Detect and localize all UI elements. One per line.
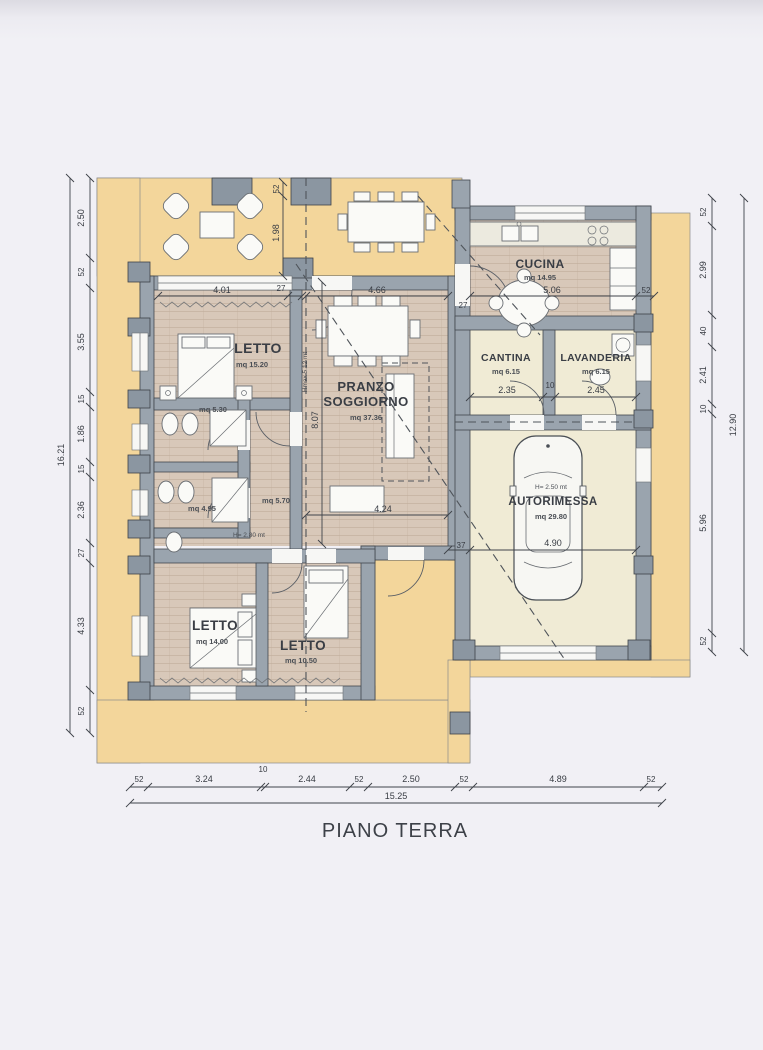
dim-left-9: 52 <box>77 706 86 715</box>
label-letto3: LETTO <box>280 638 326 653</box>
note-disimpegno-height: H= 2.80 mt <box>233 532 265 539</box>
dim-bottom-4: 52 <box>355 775 364 784</box>
area-bagno1: mq 5.30 <box>199 405 227 414</box>
dim-wall-c: 52 <box>642 286 651 295</box>
dim-left-8: 4.33 <box>76 617 86 635</box>
dim-left-6: 2.36 <box>76 501 86 519</box>
area-letto3: mq 10.50 <box>285 656 317 665</box>
dim-garage-width: 4.90 <box>544 538 562 548</box>
dim-wall-a: 27 <box>277 284 286 293</box>
dim-left-7: 27 <box>77 548 86 557</box>
dim-right-1: 2.99 <box>698 261 708 279</box>
dim-bottom-3: 2.44 <box>298 774 316 784</box>
label-letto2: LETTO <box>192 618 238 633</box>
dim-bottom-0: 52 <box>135 775 144 784</box>
area-letto2: mq 14.00 <box>196 637 228 646</box>
bed-letto3 <box>304 566 348 638</box>
dim-right-6: 52 <box>699 636 708 645</box>
dim-cucina-width: 5.06 <box>543 285 561 295</box>
area-disimpegno: mq 5.70 <box>262 496 290 505</box>
scanned-floor-plan-sheet: 2.50 52 3.55 15 1.86 15 2.36 27 4.33 52 … <box>0 0 763 1050</box>
dim-left-5: 15 <box>77 464 86 473</box>
note-hmax: Hmax 5.12 mt <box>302 352 309 393</box>
dim-lavanderia-width: 2.45 <box>587 385 605 395</box>
note-garage-height: H= 2.50 mt <box>535 484 567 491</box>
dim-right-0: 52 <box>699 207 708 216</box>
dim-right-total: 12.90 <box>728 414 738 437</box>
dim-bottom-2: 10 <box>259 765 268 774</box>
dim-patio-wall: 52 <box>272 184 281 193</box>
dim-right-3: 2.41 <box>698 366 708 384</box>
dim-bottom-5: 2.50 <box>402 774 420 784</box>
dim-bottom-6: 52 <box>460 775 469 784</box>
label-letto1: LETTO <box>234 340 282 356</box>
dim-bottom-1: 3.24 <box>195 774 213 784</box>
patio-pillar <box>291 178 331 205</box>
dim-wall-b: 27 <box>459 301 468 310</box>
dim-bottom-total: 15.25 <box>385 791 408 801</box>
area-soggiorno: mq 37.36 <box>350 413 382 422</box>
dim-soggiorno-lower-width: 4.24 <box>374 504 392 514</box>
dim-left-4: 1.86 <box>76 425 86 443</box>
dim-garage-wall: 37 <box>457 541 466 550</box>
dim-right-2: 40 <box>699 326 708 335</box>
label-lavanderia: LAVANDERIA <box>560 352 631 364</box>
dim-left-2: 3.55 <box>76 333 86 351</box>
plan-title: PIANO TERRA <box>322 820 468 842</box>
area-cantina: mq 6.15 <box>492 367 520 376</box>
dim-soggiorno-depth: 8.07 <box>310 411 320 429</box>
area-lavanderia: mq 6.15 <box>582 367 610 376</box>
dim-left-0: 2.50 <box>76 209 86 227</box>
label-autorimessa: AUTORIMESSA <box>508 496 597 508</box>
floor-plan-drawing: 2.50 52 3.55 15 1.86 15 2.36 27 4.33 52 … <box>0 0 763 1050</box>
label-soggiorno: SOGGIORNO <box>323 394 408 409</box>
dim-cantina-width: 2.35 <box>498 385 516 395</box>
dim-left-1: 52 <box>77 267 86 276</box>
label-pranzo: PRANZO <box>337 379 394 394</box>
dim-wall-d: 10 <box>546 381 555 390</box>
dim-left-3: 15 <box>77 394 86 403</box>
dim-right-4: 10 <box>699 404 708 413</box>
dim-bottom-8: 52 <box>647 775 656 784</box>
dim-soggiorno-width: 4.66 <box>368 285 386 295</box>
dim-patio-depth: 1.98 <box>271 224 281 242</box>
area-autorimessa: mq 29.80 <box>535 512 567 521</box>
kitchen-table <box>498 280 550 326</box>
dim-letto1-width: 4.01 <box>213 285 231 295</box>
area-cucina: mq 14.95 <box>524 273 556 282</box>
area-bagno2: mq 4.95 <box>188 504 216 513</box>
dim-bottom-7: 4.89 <box>549 774 567 784</box>
label-cucina: CUCINA <box>515 257 564 271</box>
dim-left-total: 16.21 <box>56 444 66 467</box>
area-letto1: mq 15.20 <box>236 360 268 369</box>
dim-right-5: 5.96 <box>698 514 708 532</box>
patio-pillar <box>450 712 470 734</box>
label-cantina: CANTINA <box>481 352 531 364</box>
